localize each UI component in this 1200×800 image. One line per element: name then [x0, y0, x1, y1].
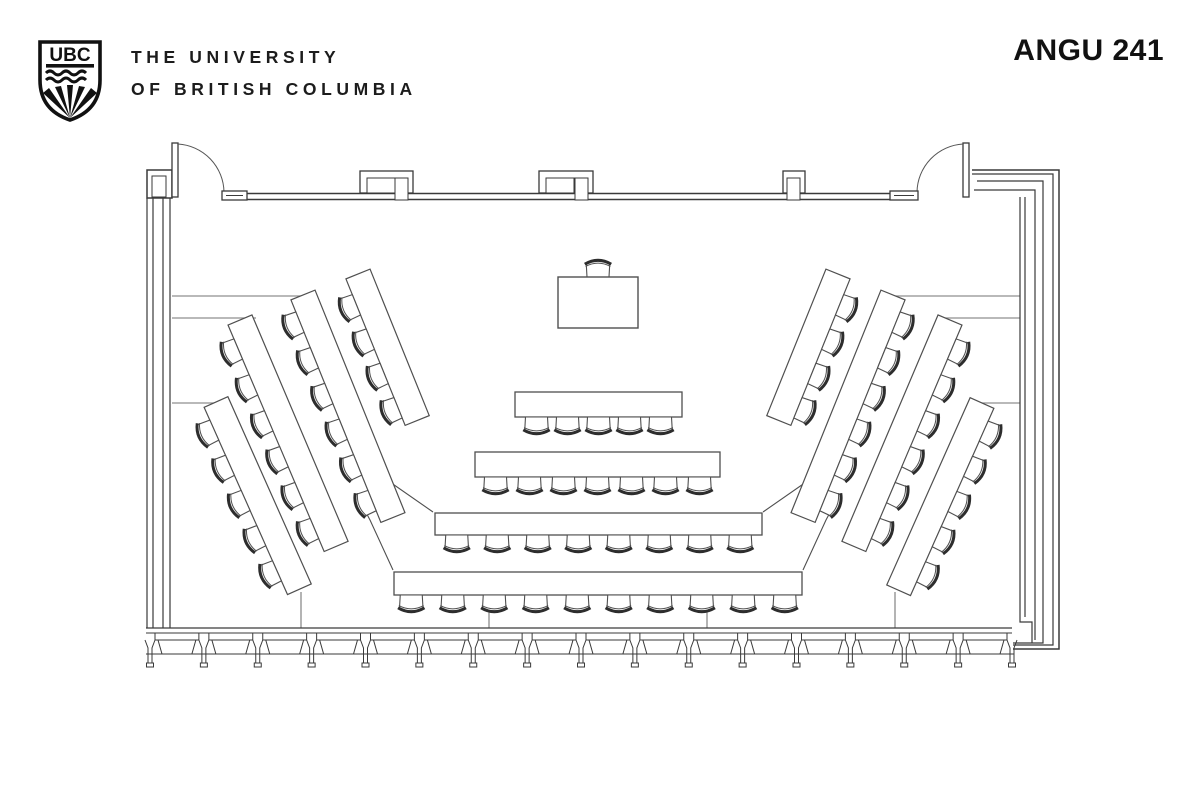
chair [689, 595, 715, 612]
chair [652, 477, 678, 494]
counter-foot [685, 663, 692, 667]
counter-unit-body [697, 640, 735, 654]
chair [440, 595, 466, 612]
right-door-arc [917, 144, 963, 192]
chair [647, 595, 673, 612]
counter-post [414, 640, 424, 654]
counter-foot [1009, 663, 1016, 667]
floor-plan-svg [0, 0, 1200, 800]
chair [584, 477, 610, 494]
chair [564, 595, 590, 612]
wall-niche-inner [787, 178, 800, 200]
chair [525, 535, 551, 552]
chair [484, 535, 510, 552]
counter-foot [147, 663, 154, 667]
counter-foot [631, 663, 638, 667]
counter-unit-body [427, 640, 465, 654]
counter-post [899, 640, 909, 654]
chair [550, 477, 576, 494]
counter-unit-top [478, 633, 522, 640]
counter-foot [955, 663, 962, 667]
counter-unit-top [209, 633, 253, 640]
counter-post [576, 640, 586, 654]
wall-niche-inner [395, 178, 408, 200]
chair [727, 535, 753, 552]
center-row [394, 572, 802, 612]
counter-post [845, 640, 855, 654]
chair [585, 417, 611, 434]
counter-post [199, 640, 209, 654]
chair [523, 595, 549, 612]
counter-unit-top [640, 633, 684, 640]
center-row [435, 513, 762, 552]
counter-foot [416, 663, 423, 667]
wall-pilaster-inner [152, 176, 166, 197]
podium [558, 260, 638, 328]
center-table [394, 572, 802, 595]
wall-niche-inner [575, 178, 588, 200]
wall-niche-inner [367, 178, 395, 193]
counter-unit-top [909, 633, 953, 640]
chair [772, 595, 798, 612]
counter-foot [308, 663, 315, 667]
counter-unit-top [371, 633, 415, 640]
counter-unit-top [317, 633, 361, 640]
right-wall-ledge [1020, 197, 1032, 643]
counter-foot [793, 663, 800, 667]
counter-post [253, 640, 263, 654]
counter-post [522, 640, 532, 654]
ubc-logo-text: UBC [49, 45, 90, 66]
chair [616, 417, 642, 434]
podium-desk [558, 277, 638, 328]
counter-unit-body [858, 640, 896, 654]
counter-unit-body [320, 640, 358, 654]
counter-post [468, 640, 478, 654]
counter-unit-top [802, 633, 846, 640]
university-name: THE UNIVERSITY OF BRITISH COLUMBIA [131, 42, 417, 105]
counter-foot [200, 663, 207, 667]
counter-unit-top [694, 633, 738, 640]
counter-unit-top [748, 633, 792, 640]
counter-unit-body [751, 640, 789, 654]
counter-foot [470, 663, 477, 667]
counter-foot [739, 663, 746, 667]
left-door-leaf [172, 143, 178, 197]
chair [482, 477, 508, 494]
counter-unit-body [158, 640, 196, 654]
counter-foot [524, 663, 531, 667]
chair [523, 417, 549, 434]
counter-post [307, 640, 317, 654]
counter-post [953, 640, 963, 654]
chair [606, 595, 632, 612]
counter-foot [362, 663, 369, 667]
chair [585, 260, 611, 277]
ubc-logo-bar [46, 64, 94, 68]
counter-post [738, 640, 748, 654]
university-name-line2: OF BRITISH COLUMBIA [131, 74, 417, 106]
chair [618, 477, 644, 494]
counter-unit-top [155, 633, 199, 640]
counter-unit-top [855, 633, 899, 640]
center-table [435, 513, 762, 535]
chair [646, 535, 672, 552]
chair [554, 417, 580, 434]
right-door-leaf [963, 143, 969, 197]
ubc-logo: UBC [38, 40, 102, 122]
chair [730, 595, 756, 612]
counter-unit-body [643, 640, 681, 654]
counter-foot [847, 663, 854, 667]
rear-counter [145, 628, 1017, 667]
counter-unit-body [212, 640, 250, 654]
counter-post [145, 640, 155, 654]
center-table [515, 392, 682, 417]
counter-unit-body [966, 640, 1004, 654]
room-title: ANGU 241 [1013, 34, 1164, 68]
chair [516, 477, 542, 494]
counter-post [1007, 640, 1017, 654]
counter-unit-top [424, 633, 468, 640]
counter-unit-body [481, 640, 519, 654]
counter-foot [254, 663, 261, 667]
counter-post [630, 640, 640, 654]
chair [444, 535, 470, 552]
chair [686, 477, 712, 494]
chair [647, 417, 673, 434]
counter-foot [578, 663, 585, 667]
chair [687, 535, 713, 552]
counter-unit-body [266, 640, 304, 654]
counter-post [684, 640, 694, 654]
counter-unit-body [805, 640, 843, 654]
center-row [515, 392, 682, 434]
counter-unit-top [263, 633, 307, 640]
chair [565, 535, 591, 552]
counter-unit-top [963, 633, 1007, 640]
chair [606, 535, 632, 552]
counter-unit-body [535, 640, 573, 654]
page-root: UBC THE UNIVERSITY OF BRITISH COLUMBIA A… [0, 0, 1200, 800]
counter-unit-top [532, 633, 576, 640]
center-row [475, 452, 720, 494]
counter-unit-top [586, 633, 630, 640]
chair [398, 595, 424, 612]
counter-unit-body [374, 640, 412, 654]
counter-unit-body [589, 640, 627, 654]
counter-post [361, 640, 371, 654]
counter-foot [901, 663, 908, 667]
left-door-arc [178, 144, 224, 192]
university-name-line1: THE UNIVERSITY [131, 42, 417, 74]
center-table [475, 452, 720, 477]
counter-unit-body [912, 640, 950, 654]
counter-post [792, 640, 802, 654]
chair [481, 595, 507, 612]
wall-niche-inner [546, 178, 574, 193]
